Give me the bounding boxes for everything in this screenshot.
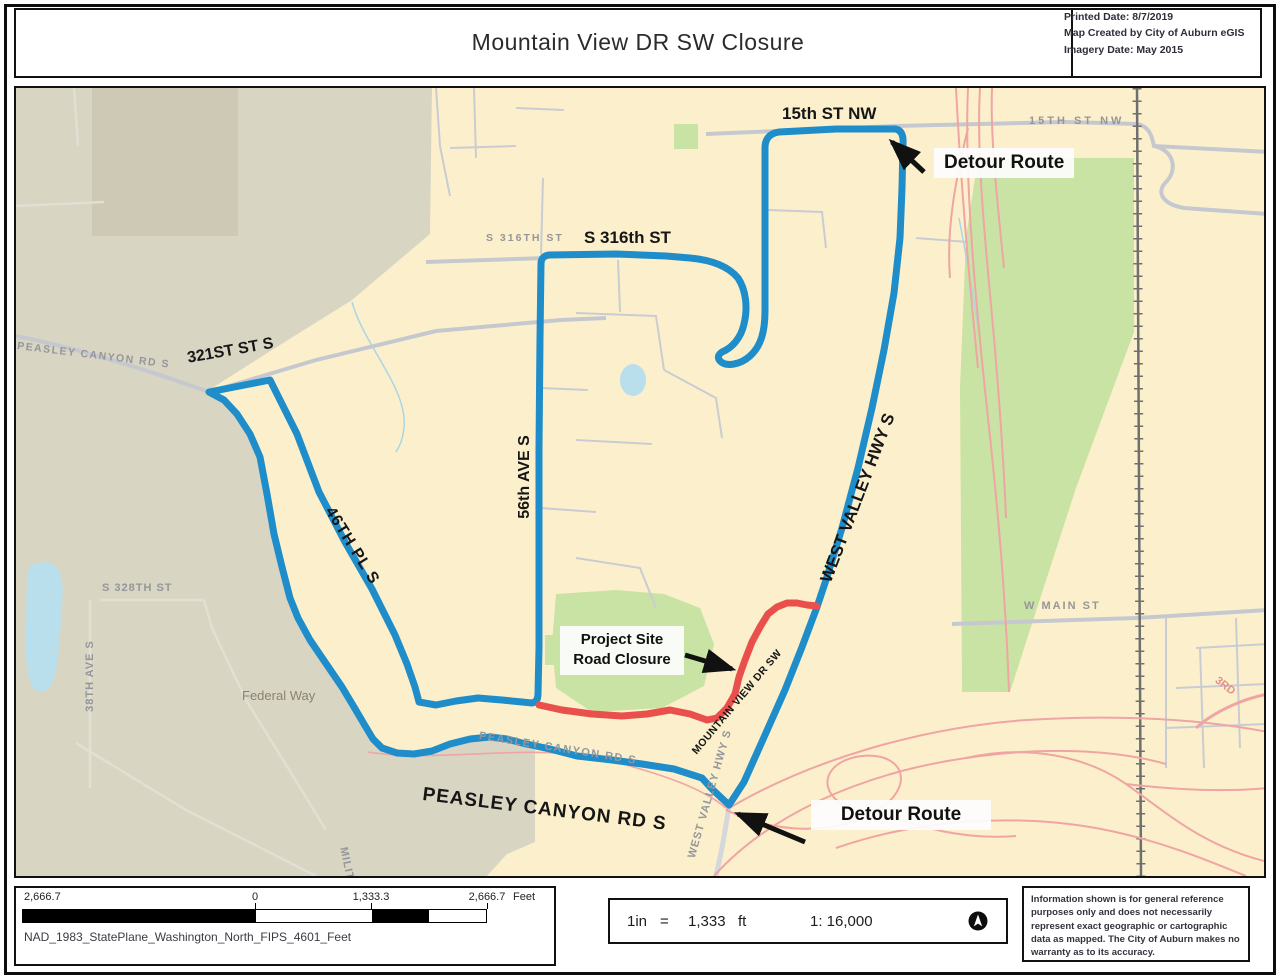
street-label-15th-st-nw: 15th ST NW xyxy=(782,104,876,124)
scale-feet-unit: ft xyxy=(738,913,746,930)
scalebar-unit: Feet xyxy=(513,891,535,903)
project-site-label: Project Site Road Closure xyxy=(560,626,684,675)
road-label-38th-ave-s: 38TH AVE S xyxy=(84,626,96,726)
street-label-56th-ave-s: 56th AVE S xyxy=(516,412,534,542)
scale-ratio: 1: 16,000 xyxy=(810,913,873,930)
scalebar-segment xyxy=(256,910,372,922)
road-label-w-main-st: W MAIN ST xyxy=(1024,600,1101,612)
scalebar-segment xyxy=(429,910,486,922)
print-metadata: Printed Date: 8/7/2019 Map Created by Ci… xyxy=(1064,9,1244,58)
basemap-graphics xyxy=(16,88,1264,876)
detour-route-label-top: Detour Route xyxy=(934,148,1074,178)
road-label-s-328th-st: S 328TH ST xyxy=(102,582,173,594)
map-canvas: 15TH ST NW S 316TH ST PEASLEY CANYON RD … xyxy=(14,86,1266,878)
city-boundary-fill xyxy=(16,88,535,876)
detour-route-label-bottom: Detour Route xyxy=(811,800,991,830)
scalebar-segment xyxy=(23,910,256,922)
scalebar-graphic xyxy=(22,909,487,923)
street-label-s-316th-st: S 316th ST xyxy=(584,228,671,248)
datum-label: NAD_1983_StatePlane_Washington_North_FIP… xyxy=(24,930,351,944)
city-label-federal-way: Federal Way xyxy=(242,688,315,703)
scalebar-panel: 2,666.7 0 1,333.3 2,666.7 Feet NAD_1983_… xyxy=(14,886,556,966)
scalebar-tick-left: 2,666.7 xyxy=(24,891,61,903)
scale-feet-value: 1,333 xyxy=(688,913,726,930)
printed-date: Printed Date: 8/7/2019 xyxy=(1064,9,1244,25)
road-label-s316th-grey: S 316TH ST xyxy=(486,232,564,244)
disclaimer-text: Information shown is for general referen… xyxy=(1024,888,1248,964)
scalebar-tick-zero: 0 xyxy=(252,891,258,903)
imagery-date: Imagery Date: May 2015 xyxy=(1064,42,1244,58)
map-sheet: Mountain View DR SW Closure Printed Date… xyxy=(0,0,1280,979)
project-site-line2: Road Closure xyxy=(570,650,674,670)
north-arrow-icon xyxy=(966,909,990,933)
scalebar-tick-mid: 1,333.3 xyxy=(353,891,390,903)
project-site-line1: Project Site xyxy=(570,630,674,650)
scalebar-tickmark xyxy=(487,903,488,909)
scalebar-segment xyxy=(372,910,429,922)
scale-ratio-panel: 1in = 1,333 ft 1: 16,000 xyxy=(608,898,1008,944)
scale-inches: 1in xyxy=(627,913,647,930)
road-label-15th-st-nw-grey: 15TH ST NW xyxy=(1029,115,1124,127)
park-areas xyxy=(545,124,1134,712)
created-by: Map Created by City of Auburn eGIS xyxy=(1064,25,1244,41)
scale-equals: = xyxy=(660,913,669,930)
disclaimer-panel: Information shown is for general referen… xyxy=(1022,886,1250,962)
detour-top-arrow xyxy=(892,142,924,172)
scalebar-tick-right: 2,666.7 xyxy=(469,891,506,903)
